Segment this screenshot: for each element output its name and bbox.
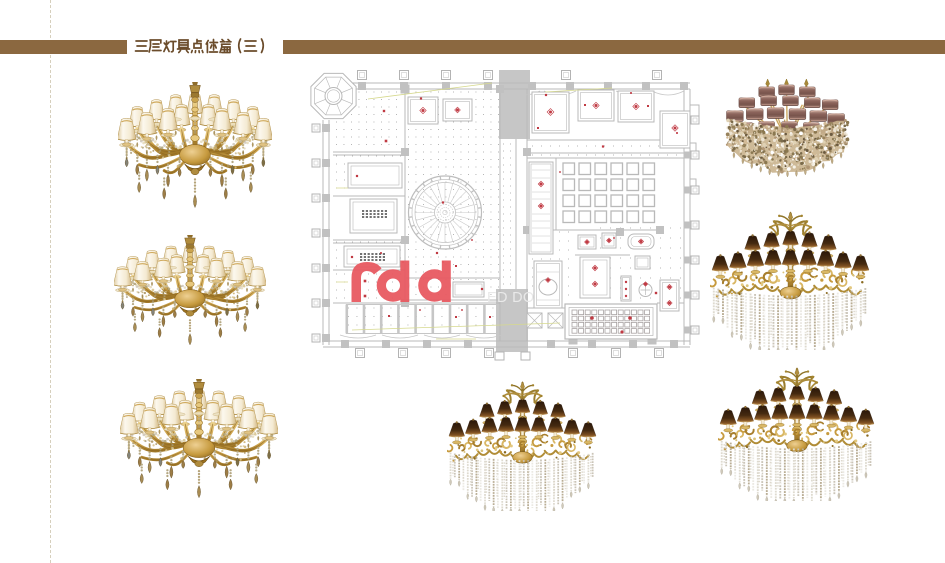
svg-text:ED DO: ED DO xyxy=(487,290,534,306)
